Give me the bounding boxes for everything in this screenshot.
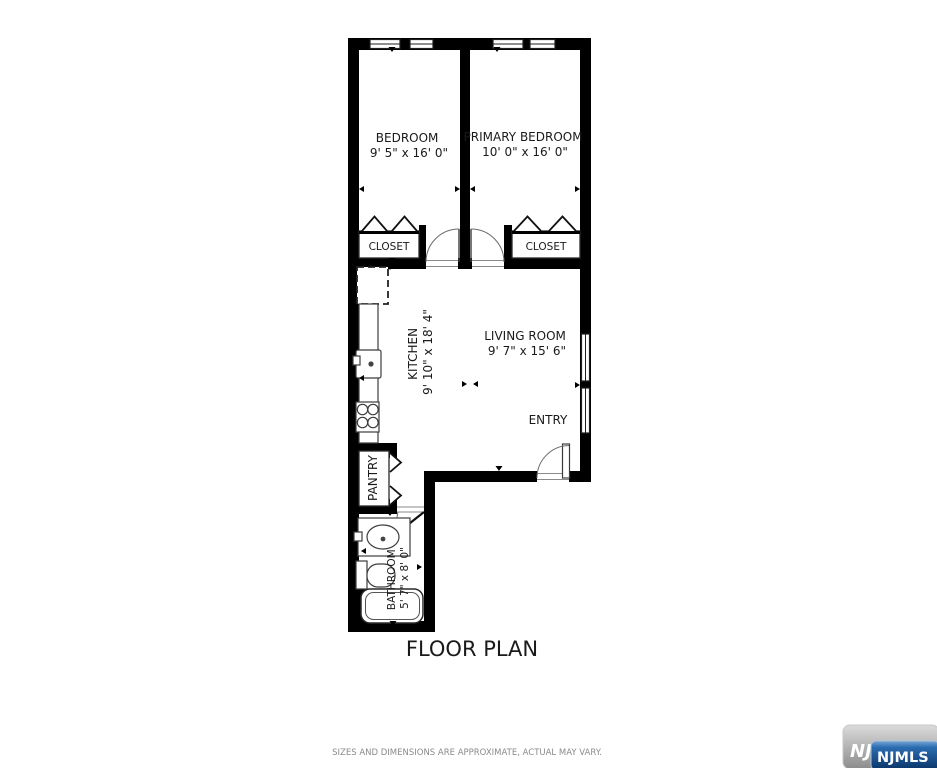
page-title: FLOOR PLAN [406, 637, 538, 661]
njmls-logo: NJ NJMLS [843, 725, 937, 768]
closet-right-label: CLOSET [526, 241, 567, 253]
njmls-logo-nj-text: NJ [850, 741, 872, 762]
floor-plan-image: BEDROOM 9' 5" x 16' 0" PRIMARY BEDROOM 1… [0, 0, 937, 768]
entry-label: ENTRY [529, 413, 568, 427]
living-room-label: LIVING ROOM 9' 7" x 15' 6" [484, 329, 569, 358]
pantry-label: PANTRY [366, 454, 380, 501]
floor-plan-svg: BEDROOM 9' 5" x 16' 0" PRIMARY BEDROOM 1… [0, 0, 937, 768]
bedroom-label: BEDROOM 9' 5" x 16' 0" [370, 131, 448, 160]
kitchen-sink-icon [353, 350, 381, 378]
stove-icon [356, 402, 379, 432]
disclaimer-text: SIZES AND DIMENSIONS ARE APPROXIMATE, AC… [332, 748, 602, 758]
refrigerator-icon [357, 267, 388, 304]
njmls-logo-njmls-text: NJMLS [877, 750, 929, 766]
bathroom-label: BATHROOM 5' 7" x 8' 0" [386, 546, 411, 610]
closet-left-label: CLOSET [369, 241, 410, 253]
